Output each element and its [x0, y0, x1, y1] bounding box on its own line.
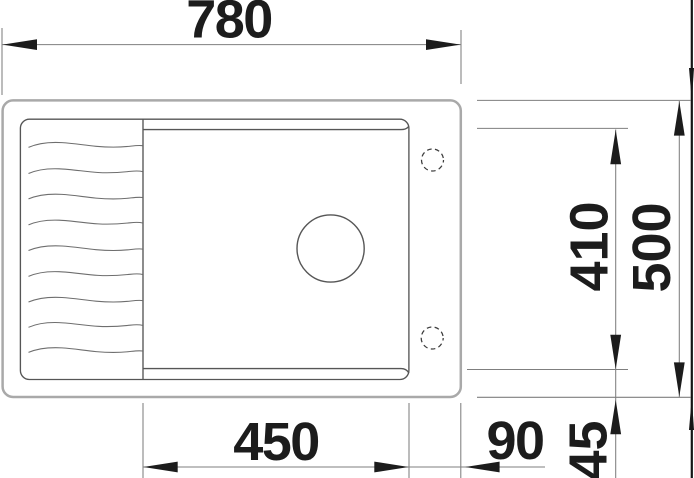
svg-text:45: 45	[559, 420, 619, 478]
svg-text:780: 780	[186, 0, 272, 49]
svg-text:410: 410	[560, 201, 620, 291]
svg-text:90: 90	[486, 411, 543, 471]
svg-text:500: 500	[622, 202, 682, 292]
svg-text:450: 450	[233, 412, 319, 472]
